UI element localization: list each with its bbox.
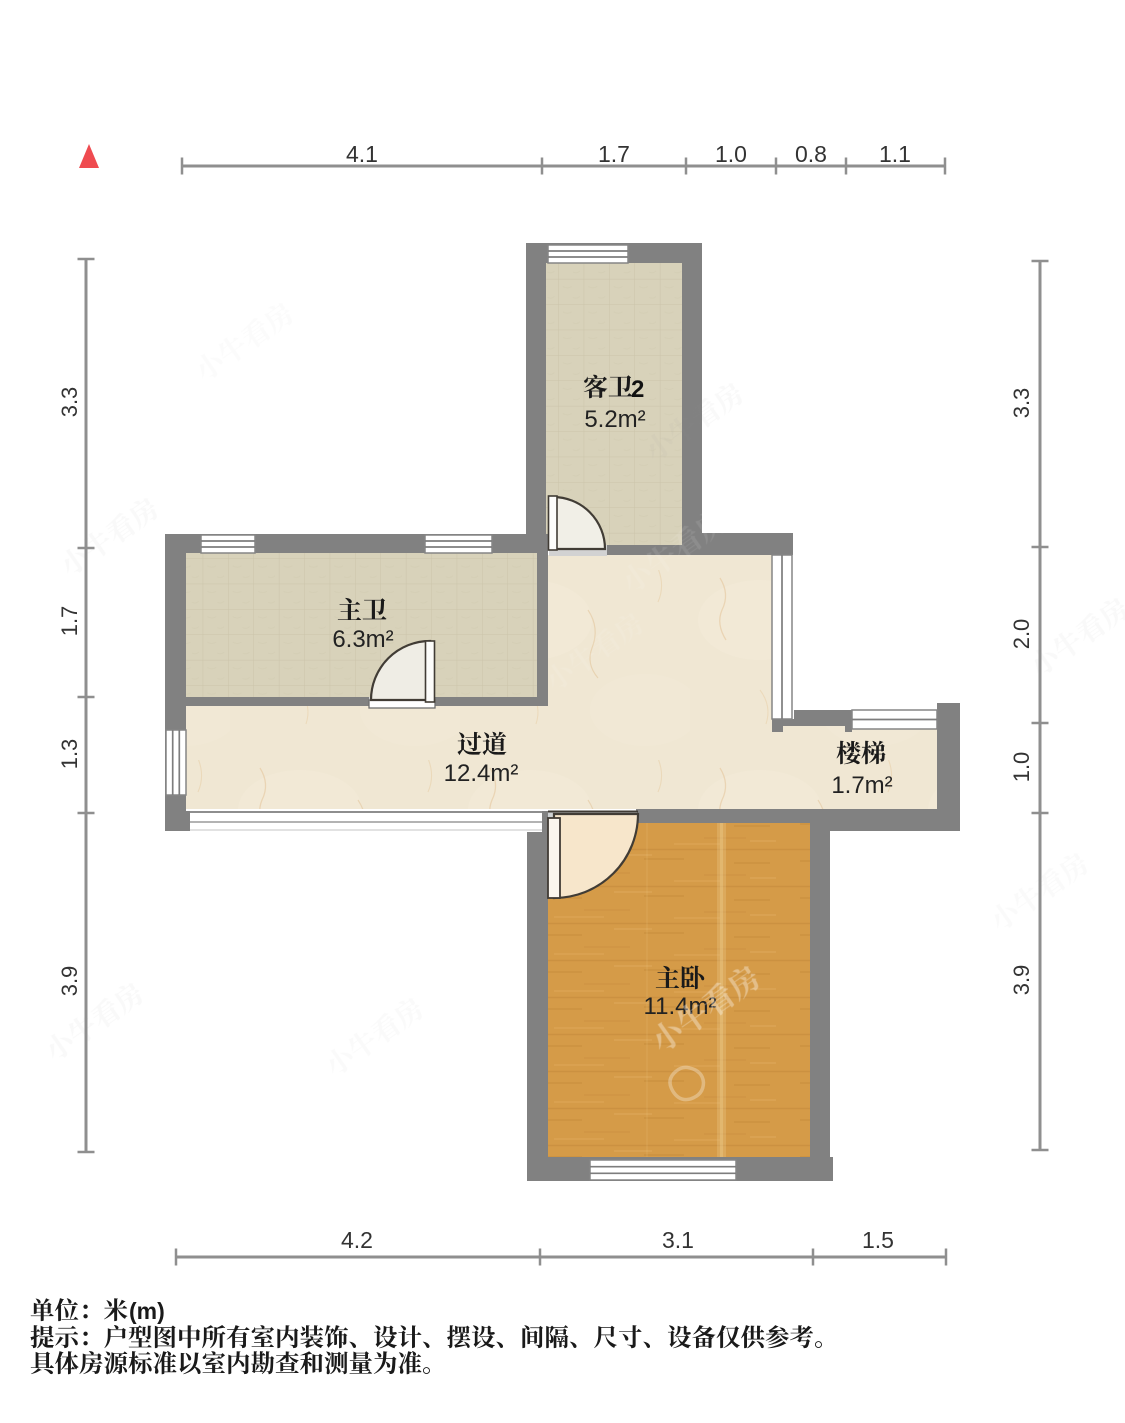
svg-text:1.1: 1.1 bbox=[879, 141, 911, 167]
svg-text:(m): (m) bbox=[129, 1298, 165, 1324]
svg-text:12.4m²: 12.4m² bbox=[444, 760, 519, 787]
svg-text:3.3: 3.3 bbox=[1009, 388, 1034, 419]
svg-text:1.5: 1.5 bbox=[862, 1227, 894, 1253]
svg-text:1.7: 1.7 bbox=[598, 141, 630, 167]
svg-text:1.3: 1.3 bbox=[57, 739, 82, 770]
svg-text:1.7: 1.7 bbox=[57, 606, 82, 637]
svg-text:4.1: 4.1 bbox=[346, 141, 378, 167]
svg-text:2: 2 bbox=[631, 376, 644, 403]
svg-text:3.1: 3.1 bbox=[662, 1227, 694, 1253]
svg-text:3.9: 3.9 bbox=[1009, 965, 1034, 996]
svg-text:1.0: 1.0 bbox=[715, 141, 747, 167]
svg-text:1.7m²: 1.7m² bbox=[831, 772, 892, 799]
svg-text:1.0: 1.0 bbox=[1009, 752, 1034, 783]
svg-text:6.3m²: 6.3m² bbox=[332, 626, 393, 653]
svg-text:5.2m²: 5.2m² bbox=[584, 406, 645, 433]
svg-text:4.2: 4.2 bbox=[341, 1227, 373, 1253]
svg-text:0.8: 0.8 bbox=[795, 141, 827, 167]
svg-text:3.9: 3.9 bbox=[57, 966, 82, 997]
svg-text:3.3: 3.3 bbox=[57, 387, 82, 418]
svg-text:2.0: 2.0 bbox=[1009, 619, 1034, 650]
